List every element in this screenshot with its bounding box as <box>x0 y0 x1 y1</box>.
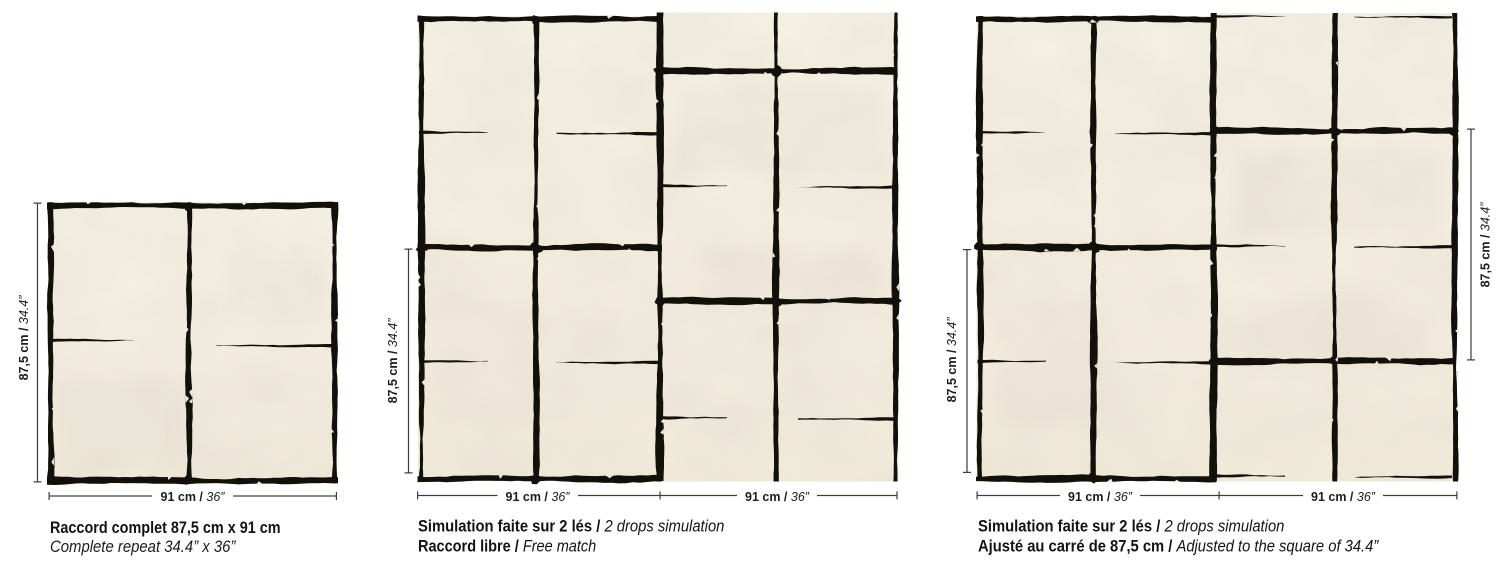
svg-text:Complete repeat 34.4” x 36”: Complete repeat 34.4” x 36” <box>50 538 236 556</box>
svg-text:87,5 cm / 34.4”: 87,5 cm / 34.4” <box>1479 202 1493 288</box>
svg-text:Simulation faite sur 2 lés / 2: Simulation faite sur 2 lés / 2 drops sim… <box>418 518 725 536</box>
svg-text:91 cm / 36”: 91 cm / 36” <box>506 490 571 504</box>
svg-text:Raccord libre / Free match: Raccord libre / Free match <box>418 538 596 556</box>
svg-text:91 cm / 36”: 91 cm / 36” <box>1311 490 1376 504</box>
svg-text:Ajusté au carré de 87,5 cm / A: Ajusté au carré de 87,5 cm / Adjusted to… <box>978 538 1379 556</box>
svg-text:87,5 cm / 34.4”: 87,5 cm / 34.4” <box>386 318 400 404</box>
svg-text:87,5 cm / 34.4”: 87,5 cm / 34.4” <box>945 317 959 403</box>
svg-text:91 cm / 36”: 91 cm / 36” <box>1068 490 1133 504</box>
svg-text:Simulation faite sur 2 lés / 2: Simulation faite sur 2 lés / 2 drops sim… <box>978 518 1285 536</box>
svg-text:91 cm / 36”: 91 cm / 36” <box>161 490 226 504</box>
svg-text:87,5 cm / 34.4”: 87,5 cm / 34.4” <box>17 295 31 381</box>
svg-text:Raccord complet 87,5 cm x 91 c: Raccord complet 87,5 cm x 91 cm <box>50 519 281 537</box>
svg-text:91 cm / 36”: 91 cm / 36” <box>745 490 810 504</box>
